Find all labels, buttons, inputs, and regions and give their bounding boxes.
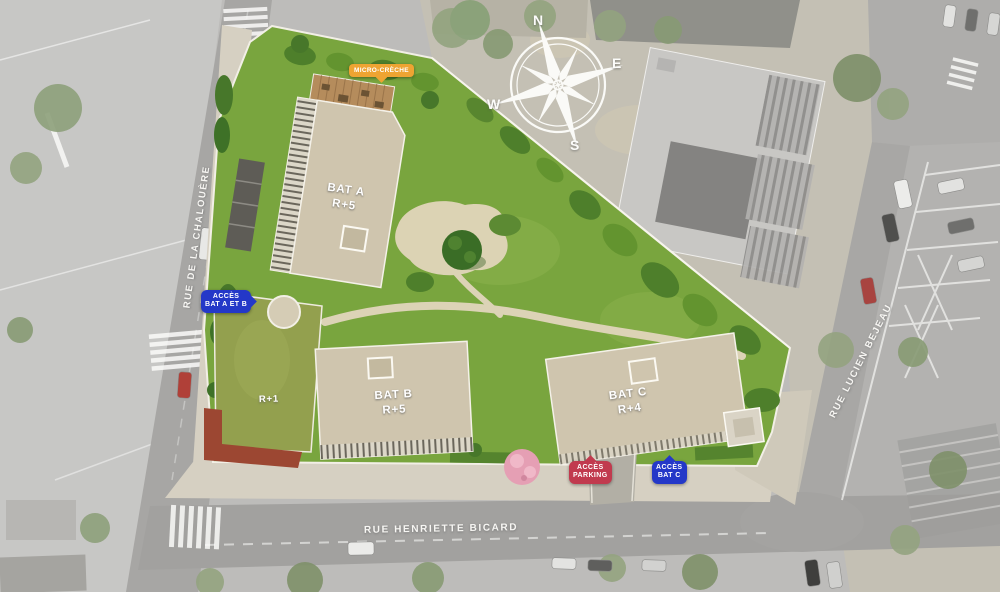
small-structure (724, 408, 764, 447)
building-annex-r1 (214, 292, 322, 452)
building-bat-b (315, 341, 473, 459)
aerial-site-plan: N E S W RUE DE LA CHALOUÈRE RUE LUCIEN B… (0, 0, 1000, 592)
pink-tree (504, 449, 540, 485)
site-plan-map-svg (0, 0, 1000, 592)
